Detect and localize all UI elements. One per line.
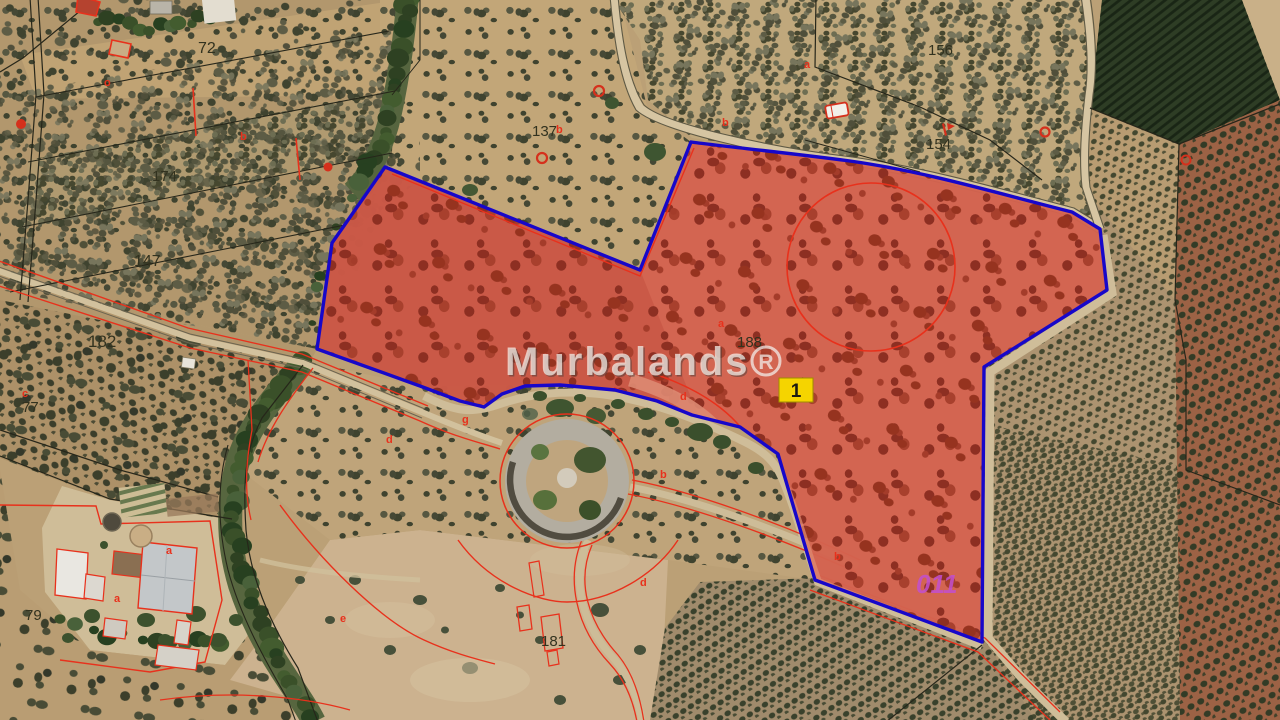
svg-text:b: b xyxy=(240,131,247,143)
svg-text:174: 174 xyxy=(152,168,177,185)
svg-text:R: R xyxy=(758,351,773,374)
svg-text:1: 1 xyxy=(791,381,802,402)
svg-text:a: a xyxy=(718,318,725,330)
svg-text:b: b xyxy=(834,551,841,563)
svg-text:a: a xyxy=(166,545,173,557)
svg-text:d: d xyxy=(640,577,647,589)
svg-text:137: 137 xyxy=(532,123,557,140)
svg-text:d: d xyxy=(386,434,393,446)
svg-text:154: 154 xyxy=(926,136,951,153)
svg-text:72: 72 xyxy=(198,40,216,57)
svg-text:147: 147 xyxy=(134,253,161,270)
svg-text:a: a xyxy=(114,593,121,605)
svg-text:a: a xyxy=(804,59,811,71)
svg-text:181: 181 xyxy=(541,633,566,650)
svg-text:Murbalands: Murbalands xyxy=(505,340,749,384)
svg-text:o: o xyxy=(104,77,111,89)
svg-text:156: 156 xyxy=(928,42,953,59)
svg-text:77: 77 xyxy=(22,399,39,416)
svg-text:c: c xyxy=(22,388,28,400)
svg-text:b: b xyxy=(556,124,563,136)
svg-text:182: 182 xyxy=(88,332,116,351)
svg-text:e: e xyxy=(340,613,346,625)
svg-text:011: 011 xyxy=(916,569,957,599)
svg-text:d: d xyxy=(680,391,687,403)
svg-text:b: b xyxy=(722,117,729,129)
svg-text:79: 79 xyxy=(25,607,42,624)
svg-text:b: b xyxy=(660,469,667,481)
svg-text:g: g xyxy=(462,414,469,426)
